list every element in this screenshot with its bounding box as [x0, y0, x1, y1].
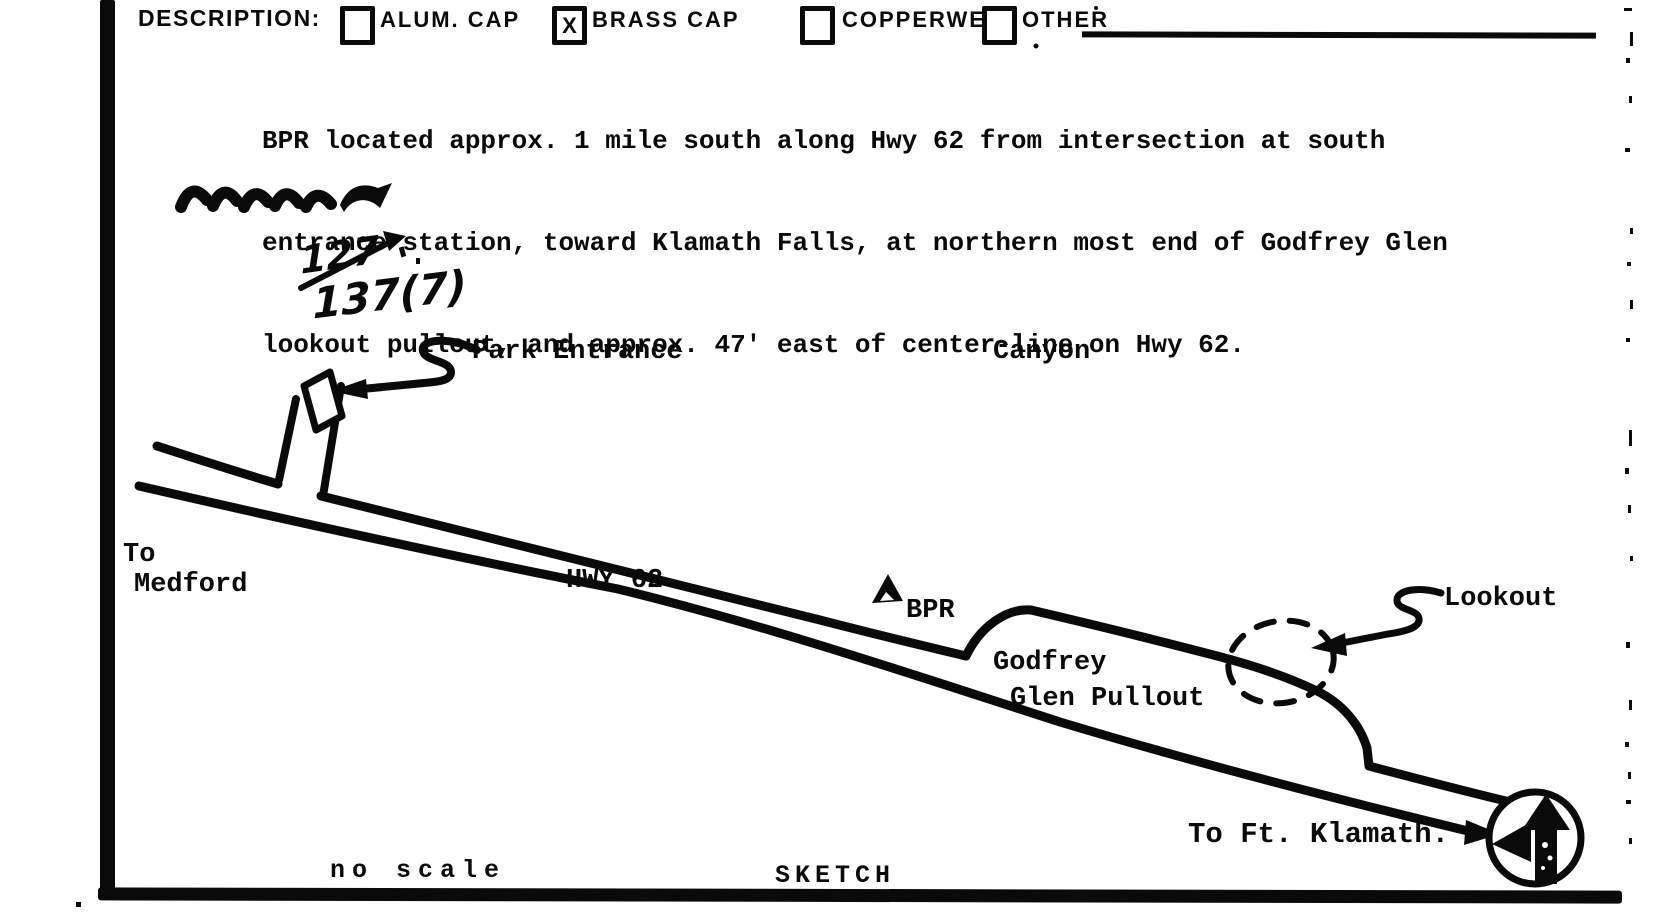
checkbox-alum-cap-label: ALUM. CAP	[380, 7, 520, 33]
label-godfrey: Godfrey	[993, 648, 1106, 678]
location-description: BPR located approx. 1 mile south along H…	[262, 56, 1448, 430]
checkbox-alum-cap	[340, 6, 375, 45]
lookout-arrow	[1342, 590, 1441, 643]
checkbox-brass-cap-mark: X	[562, 15, 577, 37]
label-to-medford-line2: Medford	[134, 570, 247, 600]
label-glen-pullout: Glen Pullout	[1010, 684, 1204, 714]
label-canyon: Canyon	[993, 337, 1090, 367]
checkbox-brass-cap: X	[552, 6, 587, 45]
location-description-line2: entrance station, toward Klamath Falls, …	[262, 226, 1448, 260]
label-park-entrance: Park Entrance	[472, 337, 683, 367]
north-arrow-icon	[1489, 792, 1581, 884]
form-left-border	[100, 0, 115, 897]
highway-upper-edge-right	[1369, 766, 1510, 802]
bpr-triangle-notch	[880, 592, 894, 601]
label-to-medford-line1: To	[123, 540, 155, 570]
other-fill-in-line	[1082, 7, 1596, 38]
label-sketch-title: SKETCH	[775, 861, 895, 890]
location-description-line3: lookout pullout, and approx. 47' east of…	[262, 328, 1448, 362]
description-label: DESCRIPTION:	[138, 5, 321, 32]
lookout-arrowhead	[1311, 633, 1347, 656]
checkbox-brass-cap-label: BRASS CAP	[592, 7, 740, 33]
highway-lower-edge	[139, 486, 1468, 831]
bpr-triangle-marker	[872, 574, 903, 603]
location-description-line1: BPR located approx. 1 mile south along H…	[262, 124, 1448, 158]
checkbox-other	[982, 6, 1017, 45]
highway-direction-arrowhead	[1464, 820, 1500, 845]
label-no-scale: no scale	[330, 856, 506, 885]
scanned-form-page: DESCRIPTION: ALUM. CAP X BRASS CAP COPPE…	[0, 0, 1664, 916]
highway-upper-edge-left	[157, 446, 278, 484]
label-hwy-62: HWY 62	[566, 566, 663, 596]
label-to-ft-klamath: To Ft. Klamath.	[1188, 818, 1449, 851]
label-bpr: BPR	[906, 596, 955, 626]
checkbox-copperweld	[800, 6, 835, 45]
lookout-dashed-circle	[1222, 612, 1341, 711]
label-lookout: Lookout	[1444, 584, 1557, 614]
